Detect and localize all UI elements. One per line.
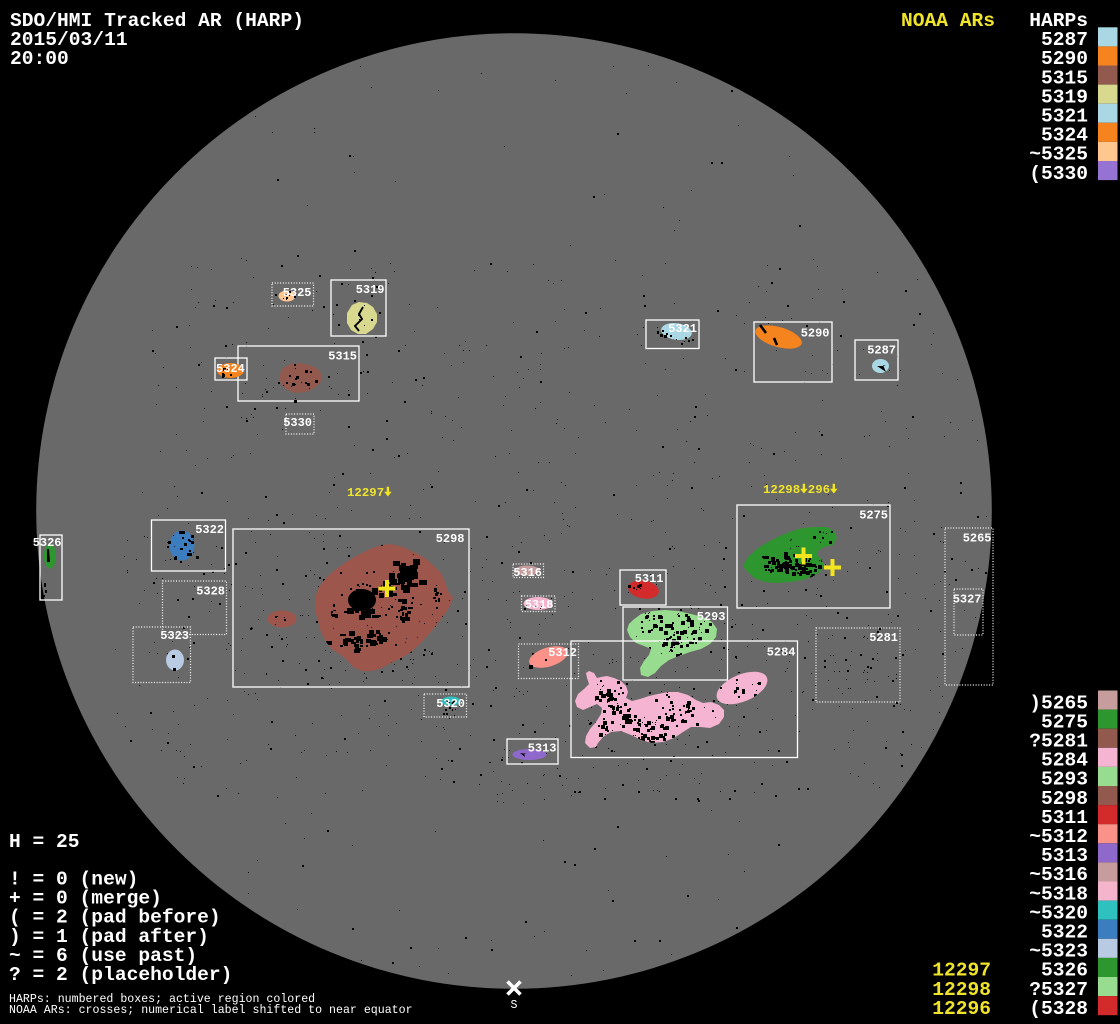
svg-text:5293: 5293 [697,610,726,624]
svg-text:5323: 5323 [160,629,189,643]
svg-text:(5328: (5328 [1029,998,1088,1020]
svg-text:5284: 5284 [767,646,796,660]
svg-text:5319: 5319 [356,283,385,297]
svg-text:NOAA ARs: NOAA ARs [901,10,995,32]
svg-text:5318: 5318 [525,598,554,612]
svg-text:5325: 5325 [283,286,312,300]
svg-text:5281: 5281 [869,631,898,645]
svg-text:5290: 5290 [801,327,830,341]
svg-text:12298: 12298 [763,483,800,497]
svg-text:H = 25: H = 25 [9,831,80,853]
svg-text:5311: 5311 [635,572,664,586]
svg-text:5275: 5275 [859,509,888,523]
svg-text:? = 2 (placeholder): ? = 2 (placeholder) [9,964,232,986]
svg-text:5326: 5326 [33,536,62,550]
svg-text:12296: 12296 [932,998,991,1020]
svg-text:296: 296 [808,483,830,497]
svg-text:5320: 5320 [436,697,465,711]
svg-text:20:00: 20:00 [10,48,69,70]
svg-text:S: S [511,999,518,1012]
svg-text:5287: 5287 [867,344,896,358]
svg-text:5322: 5322 [195,523,224,537]
svg-text:5328: 5328 [196,585,225,599]
svg-text:5321: 5321 [668,322,697,336]
svg-text:12297: 12297 [347,486,384,500]
svg-text:5312: 5312 [548,646,577,660]
svg-text:(5330: (5330 [1029,163,1088,185]
svg-text:5330: 5330 [283,416,312,430]
svg-text:5313: 5313 [528,742,557,756]
svg-text:5298: 5298 [436,532,465,546]
svg-text:5315: 5315 [328,350,357,364]
svg-text:5316: 5316 [513,566,542,580]
svg-text:5327: 5327 [953,593,982,607]
svg-text:NOAA ARs: crosses; numerical l: NOAA ARs: crosses; numerical label shift… [9,1004,413,1017]
svg-text:5324: 5324 [216,362,245,376]
svg-text:5265: 5265 [963,532,992,546]
